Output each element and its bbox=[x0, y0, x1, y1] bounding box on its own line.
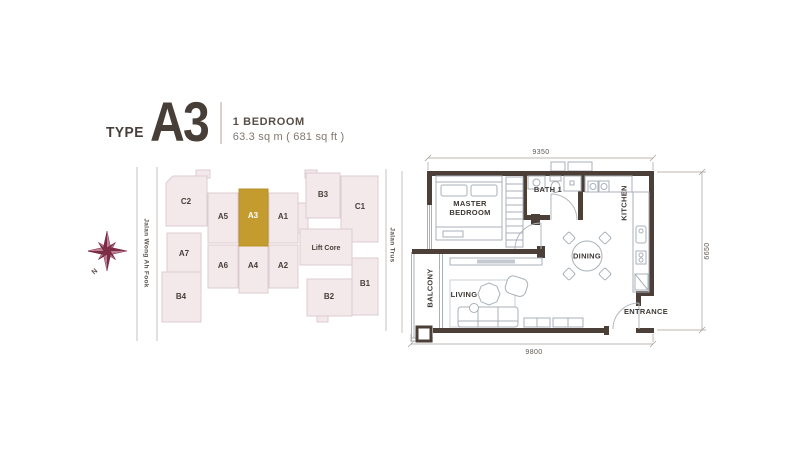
room-label-living: LIVING bbox=[451, 290, 478, 299]
sofa bbox=[458, 307, 518, 327]
coffee-table bbox=[478, 283, 500, 305]
wardrobe bbox=[506, 177, 523, 247]
unit-label-a6: A6 bbox=[218, 261, 229, 270]
master-door-arc bbox=[515, 223, 541, 249]
room-label-kitchen: KITCHEN bbox=[620, 185, 629, 220]
compass-north-label: N bbox=[91, 268, 99, 277]
unit-label-b2: B2 bbox=[324, 292, 335, 301]
wall-right bbox=[649, 171, 654, 296]
unit-label-c2: C2 bbox=[181, 197, 192, 206]
key-plan: Jalan Wong Ah Fook Jalan Trus N bbox=[88, 158, 408, 348]
unit-label-a5: A5 bbox=[218, 212, 229, 221]
dimension-bottom: 9800 bbox=[525, 349, 542, 356]
armchair bbox=[504, 274, 530, 298]
ac-ledge bbox=[568, 162, 592, 171]
room-label-entrance: ENTRANCE bbox=[624, 307, 668, 316]
side-stool bbox=[470, 304, 479, 313]
shower bbox=[564, 176, 581, 191]
wall-bath-right-lower bbox=[578, 191, 583, 220]
plan-title-block: TYPE A3 1 BEDROOM 63.3 sq m ( 681 sq ft … bbox=[106, 99, 344, 145]
tv bbox=[477, 260, 515, 264]
street-label-right: Jalan Trus bbox=[389, 227, 396, 262]
compass-rose bbox=[88, 231, 127, 271]
unit-label-a3: A3 bbox=[248, 211, 259, 220]
structural-column bbox=[417, 327, 431, 341]
type-code: A3 bbox=[150, 99, 208, 145]
unit-label-a1: A1 bbox=[278, 212, 289, 221]
wall-bath-right-upper bbox=[581, 171, 585, 192]
floor-plan: 9350 6650 9800 bbox=[396, 128, 718, 368]
unit-specs: 1 BEDROOM 63.3 sq m ( 681 sq ft ) bbox=[233, 116, 345, 143]
unit-label-b1: B1 bbox=[360, 279, 371, 288]
door-jamb bbox=[604, 326, 609, 335]
unit-label-a2: A2 bbox=[278, 261, 289, 270]
wall-left-upper bbox=[427, 171, 432, 205]
dimension-top: 9350 bbox=[532, 149, 549, 156]
unit-label-a7: A7 bbox=[179, 249, 190, 258]
unit-label-b3: B3 bbox=[318, 190, 329, 199]
room-label-bath: BATH 1 bbox=[534, 185, 562, 194]
title-divider bbox=[220, 102, 222, 144]
street-label-left: Jalan Wong Ah Fook bbox=[143, 218, 150, 287]
wall-top bbox=[428, 171, 654, 176]
unit-label-b4: B4 bbox=[176, 292, 187, 301]
kitchen-counter bbox=[585, 176, 649, 292]
wall-bedroom-living bbox=[412, 249, 545, 254]
key-plan-blocks bbox=[162, 170, 378, 322]
dimension-right: 6650 bbox=[704, 242, 711, 259]
room-label-balcony: BALCONY bbox=[426, 268, 435, 307]
ac-ledge bbox=[551, 162, 565, 171]
bedroom-bench bbox=[443, 231, 463, 237]
room-label-master-bedroom: BEDROOM bbox=[449, 208, 490, 217]
bedroom-count-label: 1 BEDROOM bbox=[233, 116, 345, 128]
type-label: TYPE bbox=[106, 125, 144, 140]
room-label-dining: DINING bbox=[573, 252, 601, 261]
unit-area-label: 63.3 sq m ( 681 sq ft ) bbox=[233, 131, 345, 143]
washer-dryer bbox=[588, 181, 609, 192]
bath-door-arc bbox=[551, 194, 577, 220]
lift-core-label: Lift Core bbox=[312, 245, 341, 252]
wall-bottom bbox=[433, 328, 608, 333]
room-label-master-bedroom: MASTER bbox=[453, 199, 487, 208]
wall-bath-left bbox=[523, 171, 527, 220]
unit-label-a4: A4 bbox=[248, 261, 259, 270]
unit-label-c1: C1 bbox=[355, 202, 366, 211]
